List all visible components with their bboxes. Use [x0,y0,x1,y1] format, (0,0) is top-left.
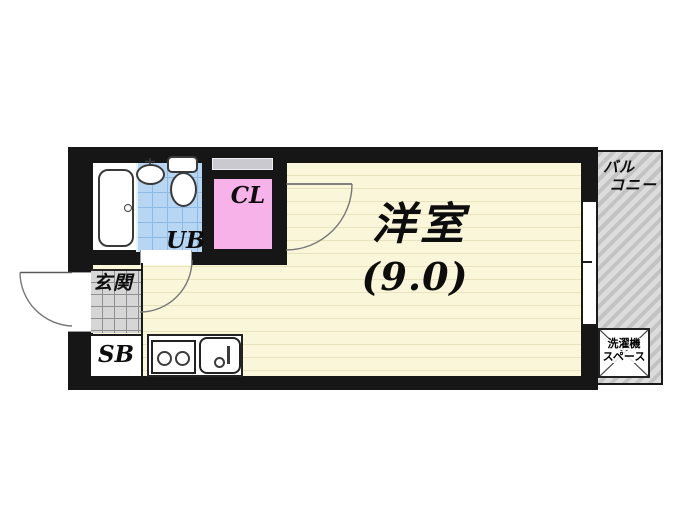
entrance-door-swing-arc [20,273,72,327]
balcony-label-line1: バル [603,160,635,175]
bathtub-drain-icon [124,204,132,212]
ub-label: UB [166,229,206,252]
balcony-window [581,201,598,326]
window-frame-bottom [581,324,598,326]
toilet-bowl [170,172,197,207]
stove-burner-box [151,340,196,374]
sink-faucet-icon [214,357,225,368]
closet-area: CL [214,179,272,249]
floorplan-canvas: バル コニー 洗濯機 スペース CL [0,0,700,525]
balcony-area: バル コニー 洗濯機 スペース [598,150,663,385]
entrance-step-line [141,263,143,377]
washer-label-line1: 洗濯機 [607,338,642,350]
kitchen-sink [199,337,241,374]
closet-label: CL [214,184,272,207]
burner-left-icon [157,351,172,366]
closet-shelf-bar [212,158,273,170]
bathtub [98,169,134,247]
main-room-label: 洋室 [335,203,505,247]
wall-bottom [68,376,598,390]
entrance-door-opening [68,272,93,332]
balcony-label-line2: コニー [609,178,657,193]
window-frame-top [581,200,598,202]
shoebox-label: SB [98,343,134,366]
burner-right-icon [175,351,190,366]
washer-space-box: 洗濯機 スペース [598,328,650,378]
window-center-tick [581,261,592,263]
wash-basin [136,164,165,185]
washer-label-line2: スペース [602,351,647,363]
wall-left [68,147,93,390]
main-room-area-label: (9.0) [330,258,500,296]
kitchen-counter [147,334,243,377]
toilet-tank [167,156,198,173]
sink-pipe-icon [227,346,230,364]
entrance-label: 玄関 [93,274,133,293]
wall-top [68,147,598,163]
washer-space-label: 洗濯機 スペース [600,338,648,364]
